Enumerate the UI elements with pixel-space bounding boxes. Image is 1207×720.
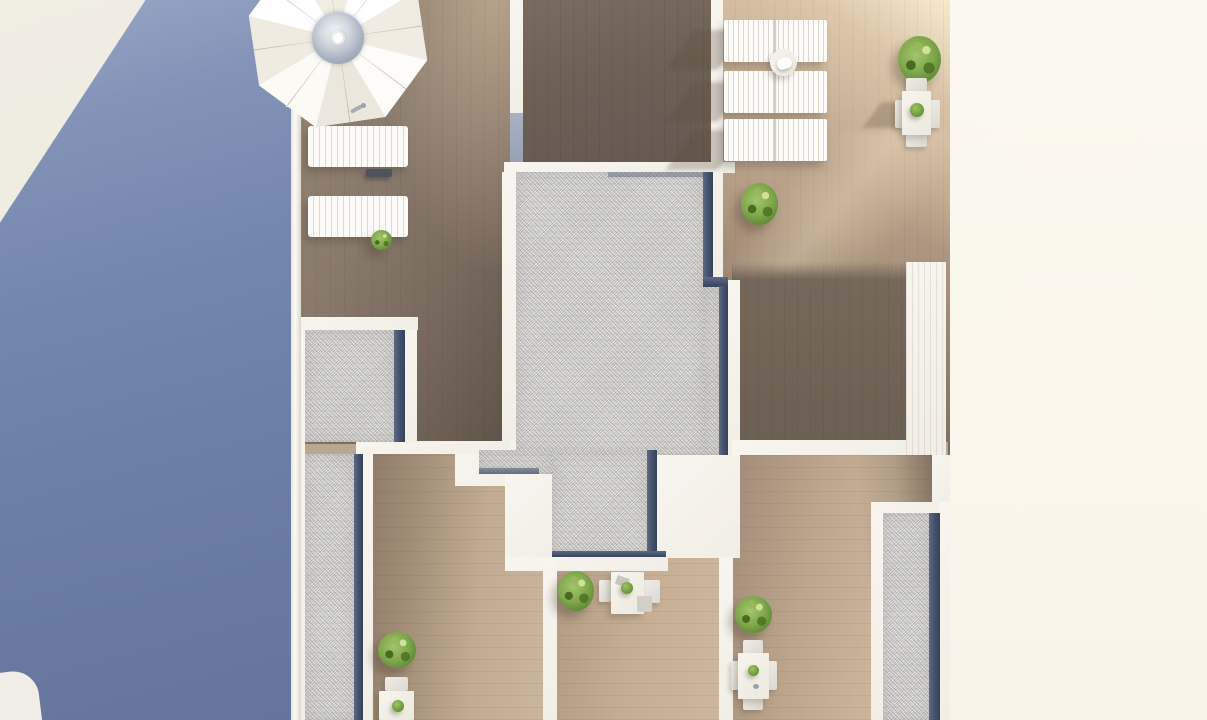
roof-edge-top xyxy=(608,172,705,177)
right-roof-plate xyxy=(655,450,740,558)
top-center-deck xyxy=(521,0,713,164)
sun-lounger-left-1 xyxy=(308,126,408,167)
right-wall-column xyxy=(906,262,946,455)
wall-room-bc xyxy=(719,557,733,720)
potted-plant-room-b xyxy=(621,582,633,594)
left-strip-right-border-upper xyxy=(404,330,417,442)
roof-edge-foot xyxy=(479,468,539,474)
sun-lounger-left-2 xyxy=(308,196,408,237)
roof-edge-right-strip xyxy=(929,513,940,720)
shaded-deck-section xyxy=(732,262,907,442)
round-side-table xyxy=(770,49,797,76)
dining-a-chair xyxy=(385,677,408,691)
dining-c-item xyxy=(753,684,759,689)
potted-plant-room-c xyxy=(748,665,759,676)
dark-side-table xyxy=(366,169,392,177)
gravel-column xyxy=(552,450,649,557)
wall-top-left-segment xyxy=(510,0,523,113)
gravel-strip-right xyxy=(883,513,930,720)
right-wall-column-lower xyxy=(932,455,950,503)
roof-edge-column xyxy=(647,450,657,557)
shrub-room-c xyxy=(735,596,772,633)
lounger-row-2 xyxy=(724,71,827,113)
potted-plant-terrace xyxy=(910,103,924,117)
shrub-room-b xyxy=(558,571,594,611)
dining-b-tucked-chair xyxy=(637,596,652,612)
rooftop-render xyxy=(0,0,1207,720)
roof-edge-column-bottom xyxy=(552,551,666,557)
roof-edge-left-strip-lower xyxy=(354,454,363,720)
margin-panel xyxy=(950,0,1207,720)
right-strip-right-border xyxy=(939,502,950,720)
gravel-strip-left-lower xyxy=(305,454,355,720)
shrub-room-a xyxy=(378,632,416,668)
roof-edge-main-upper xyxy=(703,172,713,284)
left-strip-right-border-lower xyxy=(362,454,373,720)
wall-top-left-shadow-segment xyxy=(510,113,523,164)
facade-boundary-wall xyxy=(291,102,301,720)
dining-terrace-chair-top xyxy=(906,78,927,92)
dining-c-chair-top xyxy=(743,640,763,654)
dining-b-chair-left xyxy=(599,580,611,602)
lounger-row-3 xyxy=(724,119,827,161)
parasol-glass-dome xyxy=(312,12,364,64)
roof-edge-main-lower xyxy=(719,286,728,455)
wall-room-ab xyxy=(543,557,557,720)
t-band xyxy=(505,557,668,571)
right-strip-left-border xyxy=(871,513,883,720)
gravel-strip-left xyxy=(305,330,395,442)
room-c-top-band xyxy=(732,440,933,455)
towel xyxy=(776,56,794,71)
gravel-left-border xyxy=(502,172,517,444)
gravel-main xyxy=(516,172,705,455)
shrub-near-gravel xyxy=(741,183,778,225)
dining-terrace-chair-bottom xyxy=(906,133,927,147)
dining-c-table xyxy=(738,653,769,699)
parasol-finial-dot xyxy=(361,103,366,108)
potted-plant-room-a xyxy=(392,700,404,712)
shrub-terrace-right xyxy=(898,36,941,83)
left-strip-top-border xyxy=(292,317,418,330)
potted-plant-left-terrace xyxy=(371,230,392,250)
roof-edge-left-strip-upper xyxy=(394,330,405,442)
gravel-bulge-border xyxy=(727,280,740,455)
